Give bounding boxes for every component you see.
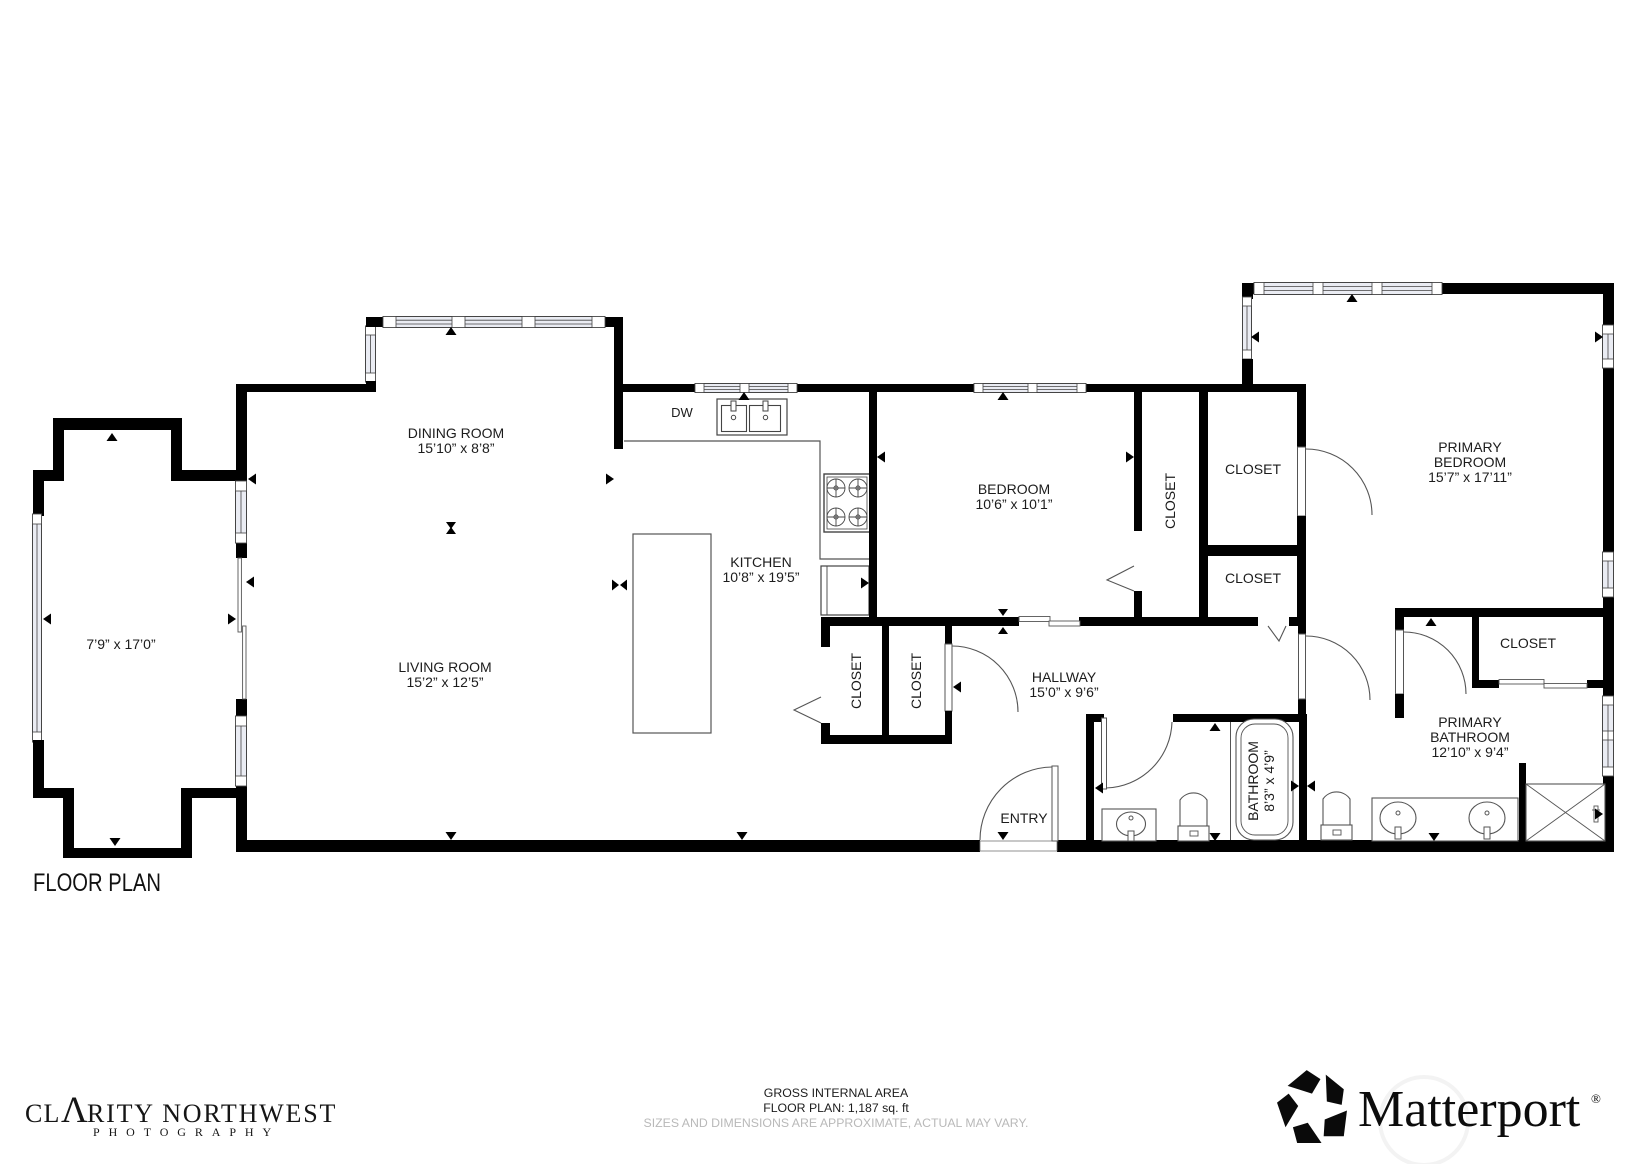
- svg-text:PRIMARY: PRIMARY: [1438, 439, 1502, 455]
- svg-text:15’7” x 17’11”: 15’7” x 17’11”: [1428, 469, 1512, 485]
- svg-text:Matterport: Matterport: [1358, 1081, 1581, 1138]
- svg-text:SIZES AND DIMENSIONS ARE APPRO: SIZES AND DIMENSIONS ARE APPROXIMATE, AC…: [644, 1116, 1029, 1130]
- svg-text:CLOSET: CLOSET: [908, 653, 924, 709]
- svg-text:FLOOR PLAN: FLOOR PLAN: [33, 869, 161, 897]
- svg-text:PHOTOGRAPHY: PHOTOGRAPHY: [93, 1125, 280, 1139]
- svg-text:PRIMARY: PRIMARY: [1438, 714, 1502, 730]
- svg-text:HALLWAY: HALLWAY: [1032, 669, 1097, 685]
- svg-text:8’3” x 4’9”: 8’3” x 4’9”: [1261, 750, 1277, 812]
- svg-text:15’0” x 9’6”: 15’0” x 9’6”: [1029, 684, 1099, 700]
- svg-text:CL: CL: [25, 1099, 61, 1128]
- svg-text:BEDROOM: BEDROOM: [978, 481, 1050, 497]
- svg-text:12’10” x 9’4”: 12’10” x 9’4”: [1431, 744, 1508, 760]
- svg-text:10’8” x 19’5”: 10’8” x 19’5”: [722, 569, 799, 585]
- svg-text:ENTRY: ENTRY: [1000, 810, 1048, 826]
- svg-text:15’2” x 12’5”: 15’2” x 12’5”: [406, 674, 483, 690]
- svg-text:LIVING ROOM: LIVING ROOM: [398, 659, 491, 675]
- svg-text:Λ: Λ: [61, 1090, 88, 1131]
- svg-text:FLOOR PLAN: 1,187 sq. ft: FLOOR PLAN: 1,187 sq. ft: [763, 1101, 909, 1115]
- svg-text:CLOSET: CLOSET: [1162, 473, 1178, 529]
- svg-text:RITY NORTHWEST: RITY NORTHWEST: [87, 1099, 337, 1128]
- svg-text:BATHROOM: BATHROOM: [1430, 729, 1510, 745]
- svg-text:CLOSET: CLOSET: [1225, 570, 1281, 586]
- svg-text:7’9” x 17’0”: 7’9” x 17’0”: [86, 636, 156, 652]
- svg-text:CLOSET: CLOSET: [1225, 461, 1281, 477]
- svg-text:®: ®: [1591, 1091, 1601, 1106]
- svg-text:DINING ROOM: DINING ROOM: [408, 425, 504, 441]
- svg-text:10’6” x 10’1”: 10’6” x 10’1”: [975, 496, 1052, 512]
- svg-text:CLOSET: CLOSET: [1500, 635, 1556, 651]
- svg-text:BEDROOM: BEDROOM: [1434, 454, 1506, 470]
- svg-text:BATHROOM: BATHROOM: [1245, 741, 1261, 821]
- svg-text:CLOSET: CLOSET: [848, 653, 864, 709]
- svg-text:GROSS INTERNAL AREA: GROSS INTERNAL AREA: [764, 1086, 909, 1100]
- svg-text:DW: DW: [671, 405, 693, 420]
- svg-text:15’10” x 8’8”: 15’10” x 8’8”: [417, 440, 494, 456]
- svg-text:KITCHEN: KITCHEN: [730, 554, 791, 570]
